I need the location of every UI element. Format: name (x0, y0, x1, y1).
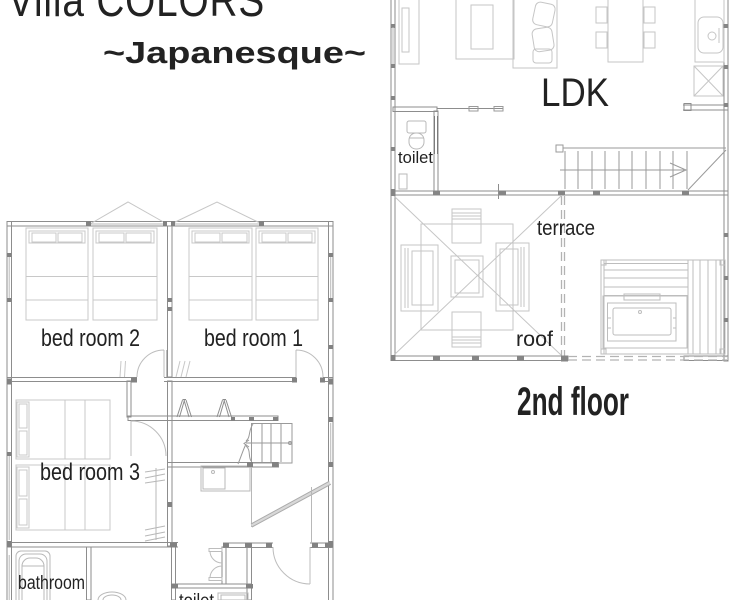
svg-text:bed room 2: bed room 2 (41, 325, 140, 352)
svg-text:Villa COLORS: Villa COLORS (8, 0, 265, 26)
svg-text:LDK: LDK (541, 71, 609, 115)
svg-text:bed room 3: bed room 3 (40, 459, 140, 486)
svg-text:bed room 1: bed room 1 (204, 325, 303, 352)
svg-text:2nd floor: 2nd floor (517, 380, 629, 424)
svg-text:roof: roof (516, 328, 553, 351)
svg-text:toilet: toilet (398, 148, 433, 167)
svg-text:~Japanesque~: ~Japanesque~ (103, 35, 366, 70)
svg-text:toilet: toilet (179, 591, 215, 600)
svg-text:bathroom: bathroom (18, 573, 85, 594)
svg-text:terrace: terrace (537, 217, 595, 240)
